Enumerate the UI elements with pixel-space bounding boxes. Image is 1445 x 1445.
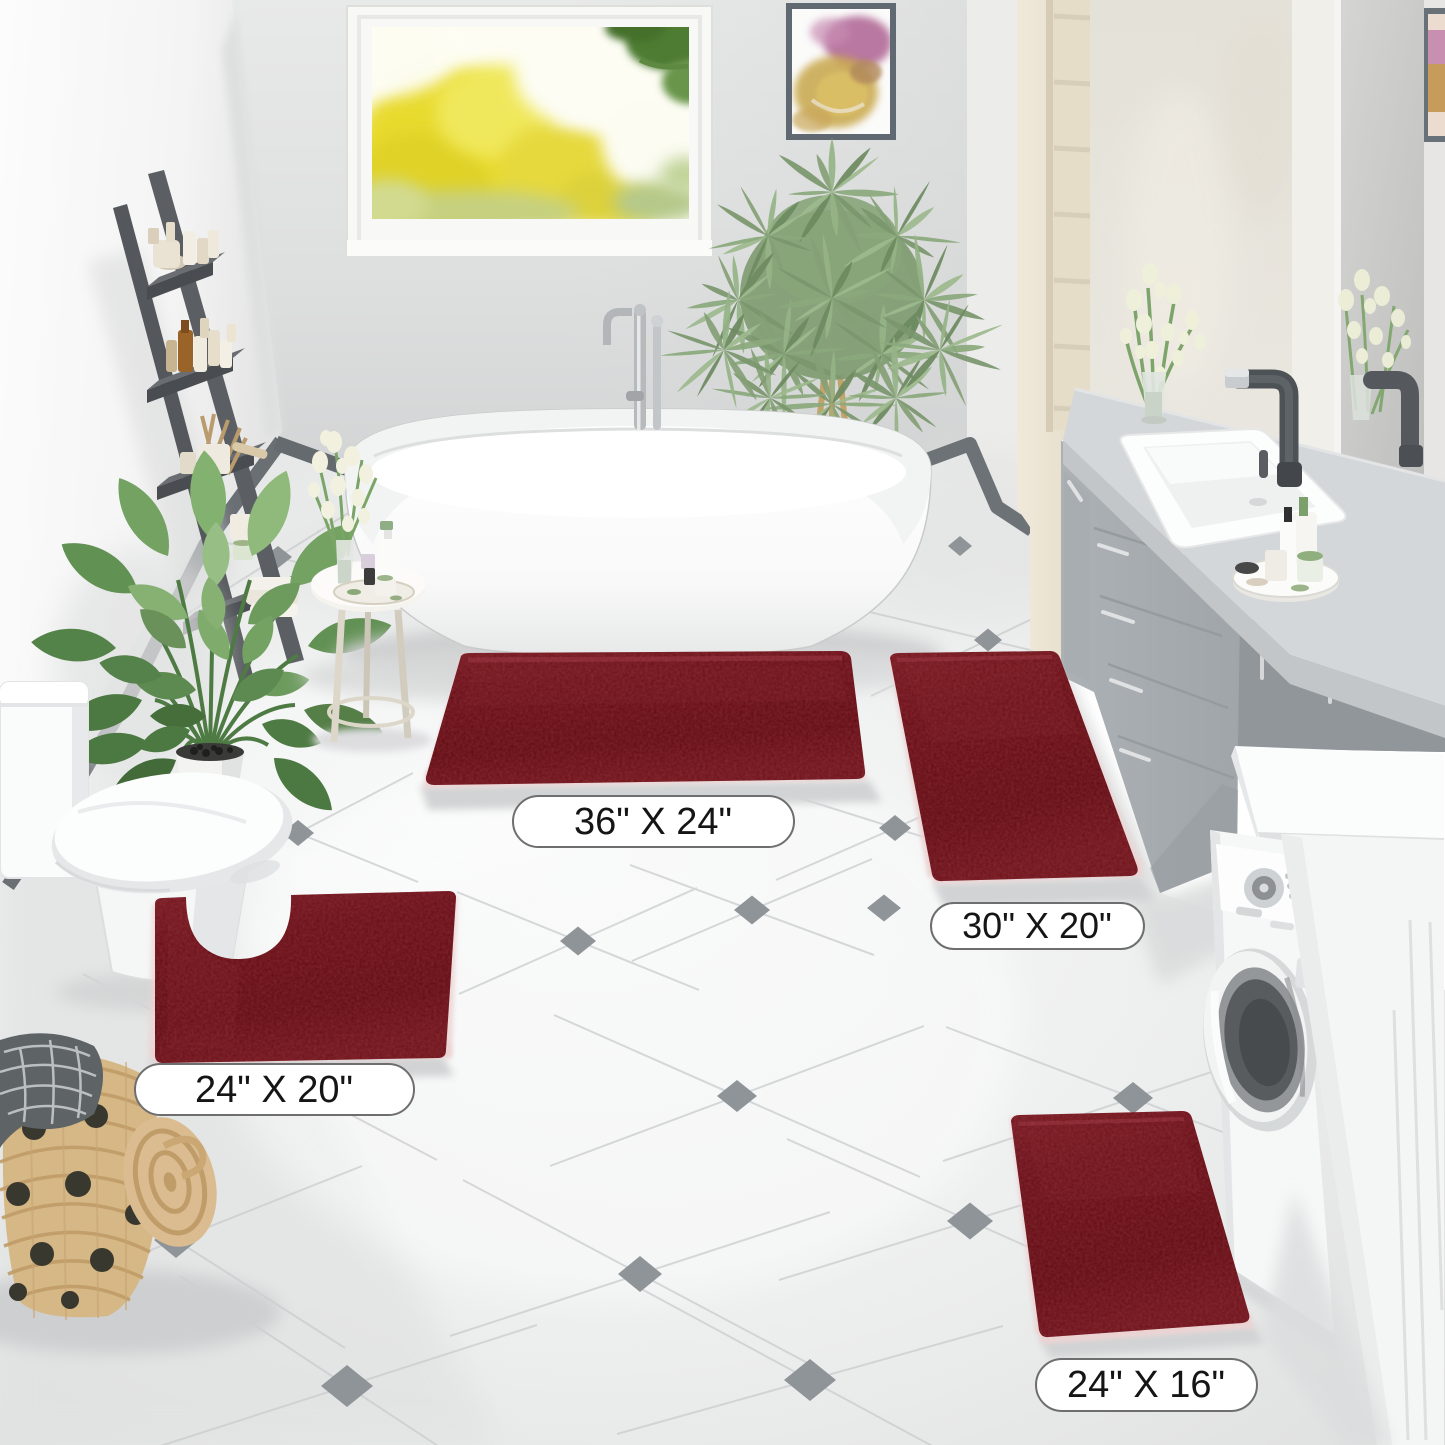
svg-text:30" X 20": 30" X 20" — [962, 905, 1112, 946]
svg-text:36" X 24": 36" X 24" — [574, 801, 732, 843]
svg-text:24" X 16": 24" X 16" — [1067, 1364, 1225, 1406]
svg-text:24" X 20": 24" X 20" — [195, 1069, 353, 1111]
